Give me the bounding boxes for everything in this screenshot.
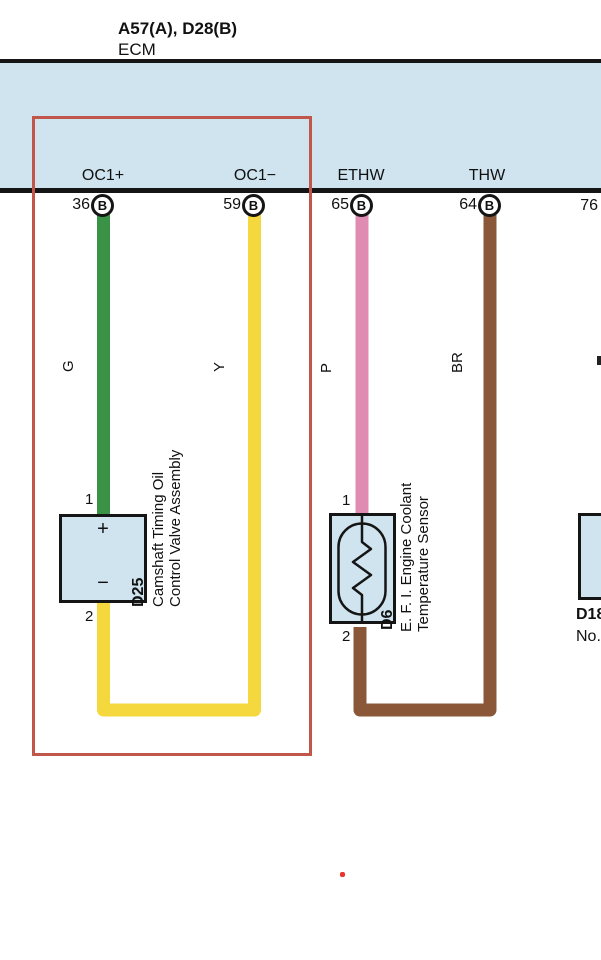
d25-component-id: D25 (130, 578, 148, 607)
wire-code-br: BR (450, 352, 466, 373)
pin-number-36: 36 (56, 196, 90, 214)
connector-b-circle-65: B (350, 194, 373, 217)
pin-label-thw: THW (452, 167, 522, 185)
pin-number-59: 59 (207, 196, 241, 214)
wiring-diagram: A57(A), D28(B) ECM OC1+ OC1− ETHW THW 36… (0, 0, 601, 960)
d6-pin-1: 1 (342, 492, 350, 509)
d25-pin-1: 1 (85, 491, 93, 508)
red-dot-marker (340, 872, 345, 877)
pin-number-64: 64 (443, 196, 477, 214)
wire-code-g: G (61, 360, 77, 372)
d25-name-line1: Camshaft Timing Oil (150, 472, 167, 607)
connector-b-circle-64: B (478, 194, 501, 217)
d25-name-line2: Control Valve Assembly (167, 450, 184, 607)
d6-name-line2: Temperature Sensor (415, 496, 432, 632)
connector-b-circle-59: B (242, 194, 265, 217)
connector-b-circle-36: B (91, 194, 114, 217)
d6-thermistor-capsule (339, 524, 386, 615)
ecm-module-label: ECM (118, 40, 156, 60)
connector-ids-label: A57(A), D28(B) (118, 19, 237, 39)
wire-code-p: P (319, 363, 335, 373)
pin-number-65: 65 (315, 196, 349, 214)
ecm-band-bottom-line (0, 188, 601, 193)
wire-thw-brown (360, 212, 490, 710)
d6-resistor-symbol (353, 513, 371, 624)
d25-plus-terminal: + (59, 519, 147, 539)
d25-pin-2: 2 (85, 608, 93, 625)
d6-pin-2: 2 (342, 628, 350, 645)
pin-label-oc1-minus: OC1− (220, 167, 290, 185)
d6-name-line1: E. F. I. Engine Coolant (398, 483, 415, 632)
d6-component-id: D6 (379, 610, 397, 630)
d18-component-id: D18 (576, 606, 601, 624)
clipped-wire-label-fragment (597, 356, 601, 365)
d6-sensor-box (331, 515, 395, 623)
d18-name-partial: No. (576, 628, 601, 646)
pin-label-ethw: ETHW (326, 167, 396, 185)
pin-number-76: 76 (572, 197, 598, 215)
pin-label-oc1-plus: OC1+ (68, 167, 138, 185)
d18-box-partial (580, 515, 601, 599)
wire-code-y: Y (212, 362, 228, 372)
